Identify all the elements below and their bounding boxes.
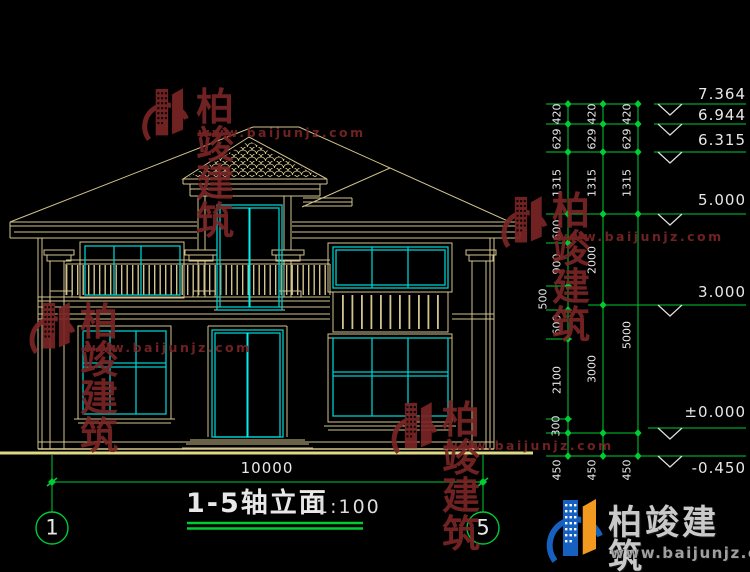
watermark-brand: 柏竣建筑 — [196, 88, 238, 240]
chain-label: 450 — [622, 460, 633, 481]
watermark-url: www.baijunjz.com — [556, 231, 724, 244]
brand-logo-color-icon — [543, 494, 603, 564]
watermark-brand: 柏竣建筑 — [442, 401, 484, 553]
watermark-brand: 柏竣建筑 — [552, 192, 594, 344]
chain-label: 1315 — [622, 169, 633, 197]
brand-logo-icon — [498, 192, 548, 249]
watermark-url: www.baijunjz.com — [198, 127, 366, 140]
brand-logo-icon — [388, 398, 438, 455]
overall-width-dim: 10000 — [227, 461, 307, 476]
elevation-value: 3.000 — [646, 285, 746, 300]
elevation-value: 5.000 — [646, 193, 746, 208]
elevation-value: -0.450 — [646, 461, 746, 476]
watermark-url: www.baijunjz.com — [446, 440, 614, 453]
chain-label: 420 — [587, 104, 598, 125]
cad-elevation-canvas: 7.364 6.944 6.315 5.000 3.000 ±0.000 -0.… — [0, 0, 750, 572]
elevation-value: 6.315 — [646, 133, 746, 148]
chain-label: 5000 — [622, 321, 633, 349]
footer-url: www.baijunjz.com — [610, 546, 750, 561]
chain-label: 420 — [552, 104, 563, 125]
elevation-value: 6.944 — [646, 108, 746, 123]
chain-label: 2100 — [552, 366, 563, 394]
elevation-value: 7.364 — [646, 87, 746, 102]
footer-brand: 柏竣建筑 — [608, 506, 750, 572]
chain-label: 300 — [551, 416, 562, 437]
chain-label: 500 — [538, 289, 549, 310]
chain-label: 420 — [622, 104, 633, 125]
chain-label: 629 — [622, 129, 633, 150]
chain-label: 629 — [552, 129, 563, 150]
chain-label: 450 — [552, 460, 563, 481]
brand-logo-icon — [26, 298, 76, 355]
watermark-url: www.baijunjz.com — [84, 342, 252, 355]
chain-label: 3000 — [587, 355, 598, 383]
watermark-brand: 柏竣建筑 — [80, 303, 122, 455]
chain-label: 629 — [587, 129, 598, 150]
elevation-drawing — [0, 0, 750, 572]
chain-label: 450 — [587, 460, 598, 481]
brand-logo-icon — [138, 84, 190, 142]
drawing-title: 1-5轴立面 — [186, 490, 328, 517]
drawing-scale: 1:100 — [316, 498, 381, 517]
axis-bubble-1: 1 — [45, 518, 58, 539]
elevation-value: ±0.000 — [646, 405, 746, 420]
